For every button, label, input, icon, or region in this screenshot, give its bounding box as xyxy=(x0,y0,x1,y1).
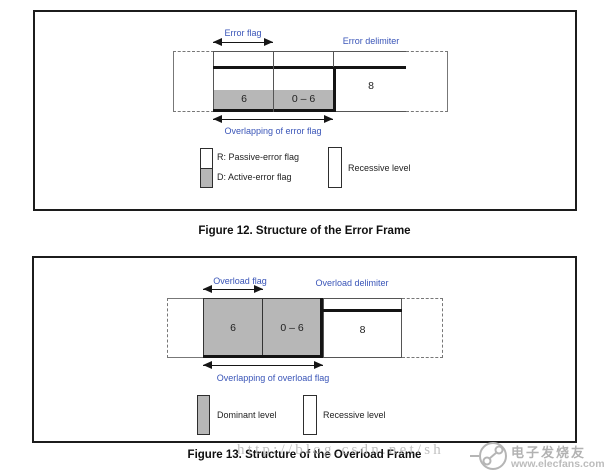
recessive-level-legend-swatch xyxy=(328,147,342,188)
overload-overlap-label: Overlapping of overload flag xyxy=(188,373,358,383)
dominant-level-legend-label: Dominant level xyxy=(217,410,277,420)
error-band-left-continuation xyxy=(173,51,214,112)
error-dominant-signal-line xyxy=(213,109,336,112)
error-recessive-signal-line xyxy=(213,66,407,69)
recessive-level-legend-label: Recessive level xyxy=(348,163,411,173)
error-delimiter-bits-value: 8 xyxy=(336,80,406,92)
overload-recessive-signal-line xyxy=(323,309,402,312)
active-error-swatch-half xyxy=(201,168,212,187)
error-flag-label: Error flag xyxy=(193,28,293,38)
watermark-site-url: www.elecfans.com xyxy=(511,458,605,470)
passive-active-legend-swatch xyxy=(200,148,213,188)
error-flag-span-arrow xyxy=(213,42,273,43)
error-band-right-continuation xyxy=(406,51,448,112)
error-flag-bits-value: 6 xyxy=(214,93,274,105)
error-frame-caption: Figure 12. Structure of the Error Frame xyxy=(0,225,609,237)
error-cell-divider-top xyxy=(333,51,334,67)
error-overlap-span-arrow xyxy=(213,119,333,120)
elecfans-logo-icon xyxy=(470,440,510,473)
overload-band-left-continuation xyxy=(167,298,204,358)
overload-dominant-signal-line xyxy=(203,355,323,358)
overload-flag-bits-value: 6 xyxy=(203,322,263,334)
dominant-level-legend-swatch xyxy=(197,395,210,435)
overload-delimiter-bits-value: 8 xyxy=(323,324,402,336)
overload-flag-span-arrow xyxy=(203,289,263,290)
overload-overlap-span-arrow xyxy=(203,365,323,366)
watermark-url-text: http://blog.csdn.net/sh xyxy=(237,442,444,459)
error-delimiter-label: Error delimiter xyxy=(321,36,421,46)
overload-band-right-continuation xyxy=(402,298,443,358)
overload-delimiter-label: Overload delimiter xyxy=(302,278,402,288)
recessive-level-legend-label-2: Recessive level xyxy=(323,410,386,420)
recessive-level-legend-swatch-2 xyxy=(303,395,317,435)
passive-error-flag-legend-label: R: Passive-error flag xyxy=(217,152,299,162)
document-page: Error flag Error delimiter 6 0 – 6 8 Ove… xyxy=(0,0,609,476)
active-error-flag-legend-label: D: Active-error flag xyxy=(217,172,292,182)
overload-echo-bits-value: 0 – 6 xyxy=(263,322,321,334)
error-echo-bits-value: 0 – 6 xyxy=(274,93,333,105)
error-overlap-label: Overlapping of error flag xyxy=(193,126,353,136)
